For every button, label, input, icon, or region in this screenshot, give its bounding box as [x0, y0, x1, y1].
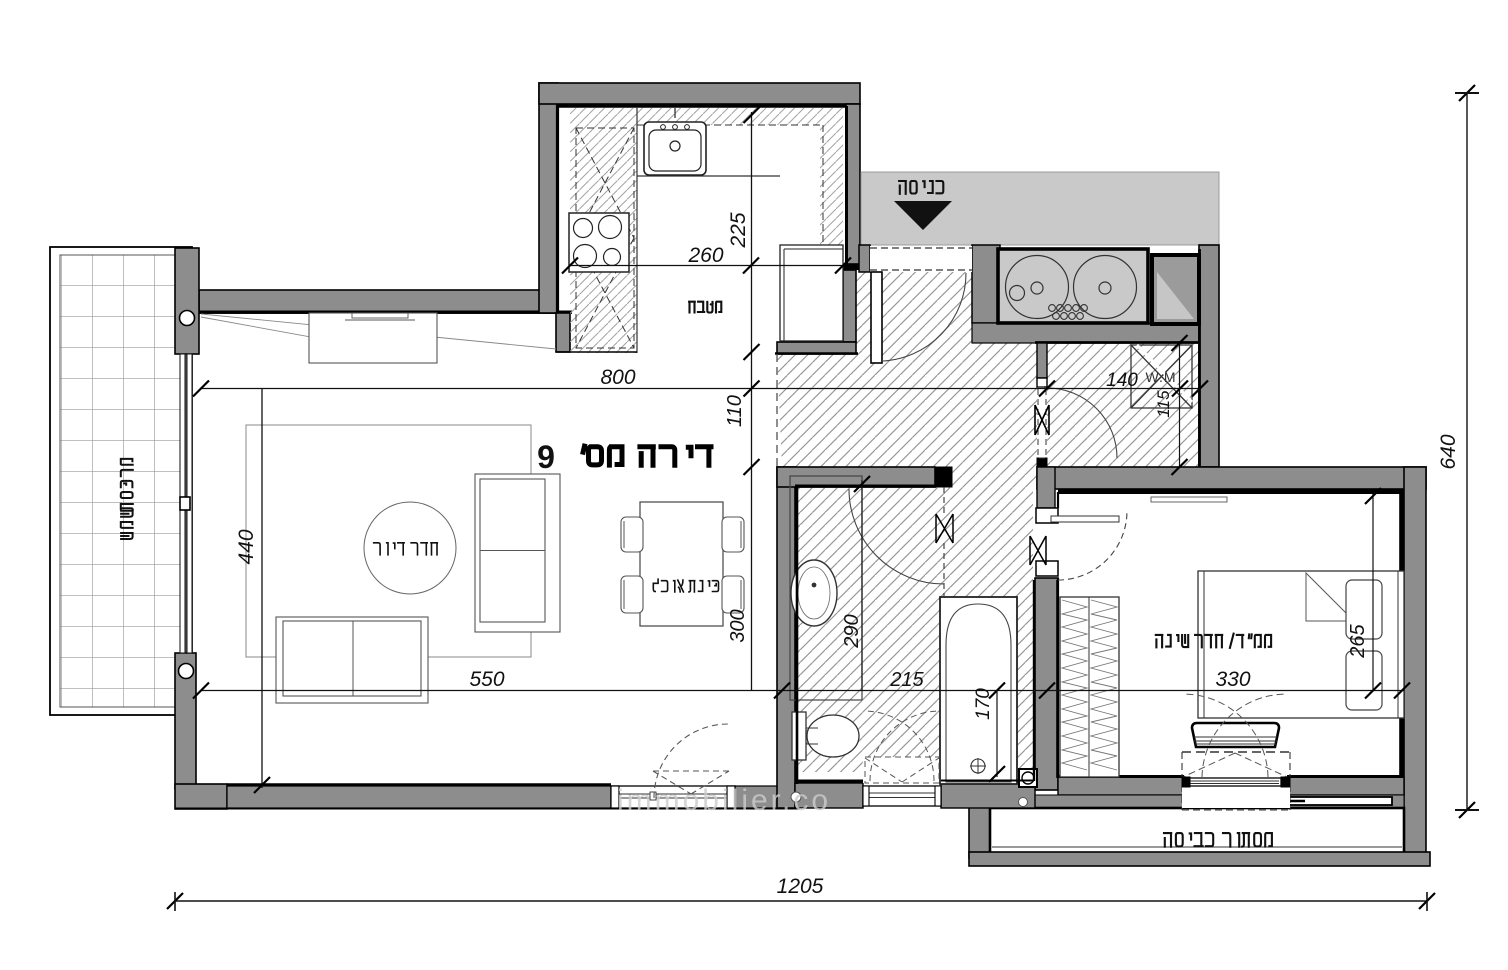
svg-text:800: 800 [600, 366, 635, 389]
svg-text:330: 330 [1215, 668, 1250, 691]
svg-text:640: 640 [1437, 434, 1460, 469]
svg-text:110: 110 [724, 395, 746, 427]
svg-text:260: 260 [687, 244, 723, 267]
svg-text:9: 9 [537, 439, 555, 475]
svg-text:170: 170 [973, 688, 994, 720]
svg-text:140: 140 [1106, 370, 1138, 391]
svg-text:115: 115 [1154, 390, 1173, 418]
svg-text:550: 550 [469, 668, 504, 691]
svg-text:W.M: W.M [1146, 369, 1177, 385]
svg-text:1205: 1205 [777, 875, 824, 898]
svg-text:300: 300 [727, 609, 749, 642]
svg-text:215: 215 [889, 669, 924, 691]
svg-text:265: 265 [1347, 623, 1369, 658]
svg-text:225: 225 [727, 212, 750, 248]
svg-text:440: 440 [235, 529, 258, 564]
svg-text:immobilier.co: immobilier.co [617, 784, 831, 817]
svg-text:290: 290 [841, 614, 863, 648]
